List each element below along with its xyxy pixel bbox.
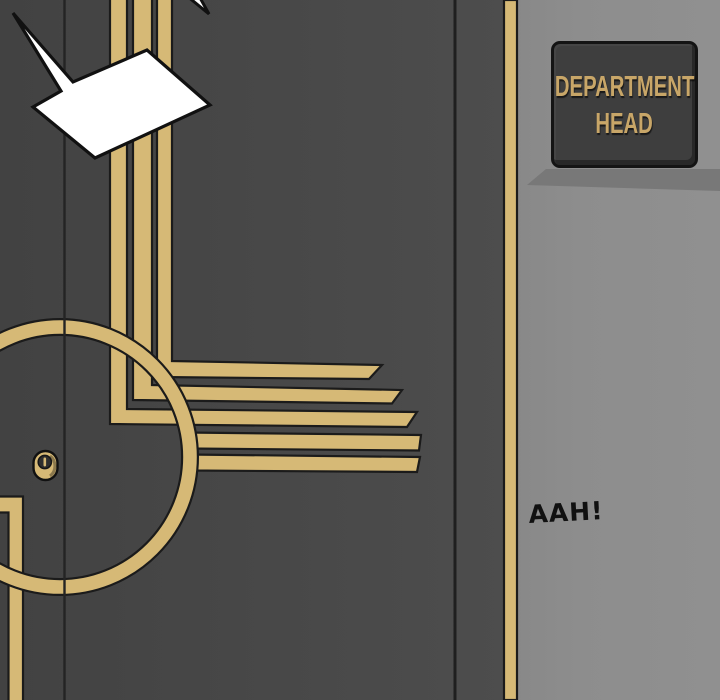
sign-line-2: HEAD xyxy=(596,106,654,142)
department-head-sign: DEPARTMENT HEAD xyxy=(551,41,698,168)
stripe-horizontal-5 xyxy=(188,455,420,473)
stripe-horizontal-4 xyxy=(186,433,421,451)
comic-panel: DEPARTMENT HEAD AAH! xyxy=(0,0,720,700)
speech-bubble-shape xyxy=(13,13,210,158)
keyhole-icon xyxy=(34,451,58,480)
speech-bubble xyxy=(0,0,225,170)
sign-line-1: DEPARTMENT xyxy=(555,69,694,105)
keyhole-slit xyxy=(44,458,47,467)
speech-bubble-text: AAH! xyxy=(519,497,612,530)
wall-gold-trim xyxy=(504,0,517,700)
